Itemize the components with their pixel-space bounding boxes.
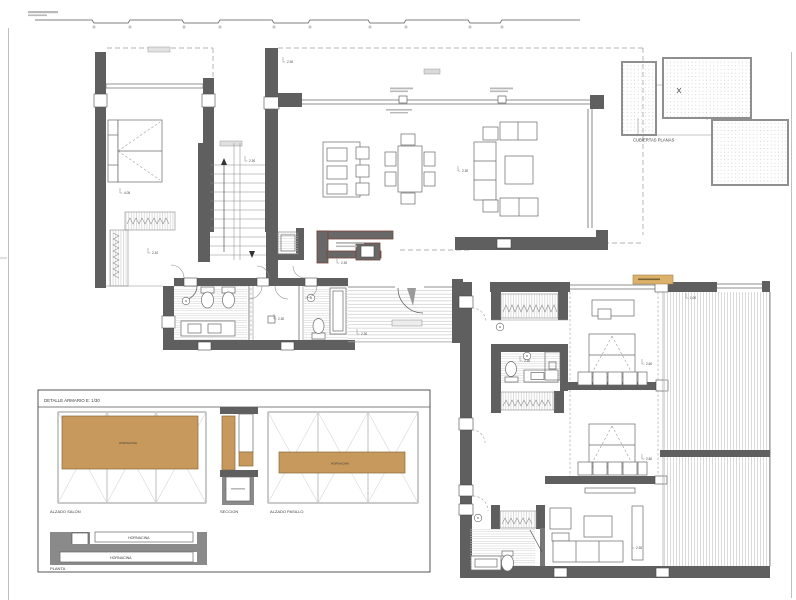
svg-text:2.30: 2.30 (524, 359, 530, 363)
kitchen-island-icon (323, 142, 369, 197)
key-plan-title: CUBIERTAS PLANAS (633, 138, 674, 143)
svg-text:2.30: 2.30 (361, 332, 367, 336)
bidet-icon (222, 287, 235, 308)
bathroom-row (162, 265, 355, 350)
panel-left-label: HORNACINA (119, 441, 137, 445)
svg-text:2.60: 2.60 (646, 362, 652, 366)
glazing-note (386, 88, 513, 114)
svg-text:2.30: 2.30 (249, 159, 255, 163)
svg-text:2.30: 2.30 (462, 169, 468, 173)
sofa-icon (553, 541, 623, 562)
double-bed-icon (589, 334, 635, 377)
living-room (264, 48, 608, 250)
detail-armario-box: DETALLE ARMARIO E: 1/30 HORNACINA ALZADO… (38, 390, 430, 572)
plan-bar-bottom-label: HORNACINA (110, 556, 132, 560)
svg-text:2.60: 2.60 (646, 457, 652, 461)
toilet-icon (312, 319, 325, 340)
stair-treads (210, 143, 266, 260)
svg-text:2.30: 2.30 (636, 546, 642, 550)
svg-text:2.30: 2.30 (341, 261, 347, 265)
key-plan-cubiertas: CUBIERTAS PLANAS (622, 58, 788, 185)
toilet-icon (201, 287, 214, 308)
vanity-icon (181, 321, 235, 336)
double-bed-icon (108, 120, 162, 182)
shower-closet (249, 286, 288, 338)
elevation-salon-label: ALZADO SALON (50, 509, 81, 514)
bedroom-wing (459, 275, 770, 578)
toilet-icon (502, 551, 514, 571)
svg-text:2.10: 2.10 (152, 251, 158, 255)
elevation-pasillo-label: ALZADO PASILLO (270, 509, 304, 514)
tan-note (633, 275, 673, 284)
roof-profile-line (28, 11, 580, 29)
sofa-set-icon (474, 122, 538, 216)
section-drawing: SECCION (220, 407, 258, 514)
bathroom-1 (174, 286, 247, 340)
wardrobe-2 (491, 391, 564, 413)
svg-text:2.30: 2.30 (278, 317, 284, 321)
bathroom-3 (491, 344, 568, 391)
roof-overhang-dashed (107, 47, 643, 250)
wardrobe-1 (491, 292, 568, 320)
bedroom-3 (550, 506, 643, 562)
detail-title: DETALLE ARMARIO E: 1/30 (44, 398, 100, 403)
wardrobe-icon (110, 212, 175, 286)
vanity-icon (471, 556, 501, 570)
plan-svg: 2.30 4.05 2.30 2.10 2.30 2.30 2.30 2.30 … (0, 0, 796, 600)
panel-right-label: HORNACINA (331, 462, 349, 466)
bathroom-4 (470, 505, 545, 571)
dining-table-icon (385, 134, 435, 204)
double-bed-icon (589, 424, 635, 467)
plan-bar-top-label: HORNACINA (128, 536, 150, 540)
shower-icon (330, 288, 346, 334)
side-deck (660, 292, 770, 566)
bathroom-2 (303, 286, 348, 340)
section-label: SECCION (220, 509, 238, 514)
svg-text:1.00: 1.00 (690, 296, 696, 300)
stair-direction-arrow (221, 158, 255, 258)
svg-text:4.05: 4.05 (124, 191, 130, 195)
floor-plan-sheet: 2.30 4.05 2.30 2.10 2.30 2.30 2.30 2.30 … (0, 0, 796, 600)
bedroom-1 (570, 292, 658, 385)
svg-text:2.30: 2.30 (287, 60, 293, 64)
entrance-porch (317, 231, 393, 263)
planta-label: PLANTA (50, 566, 66, 571)
